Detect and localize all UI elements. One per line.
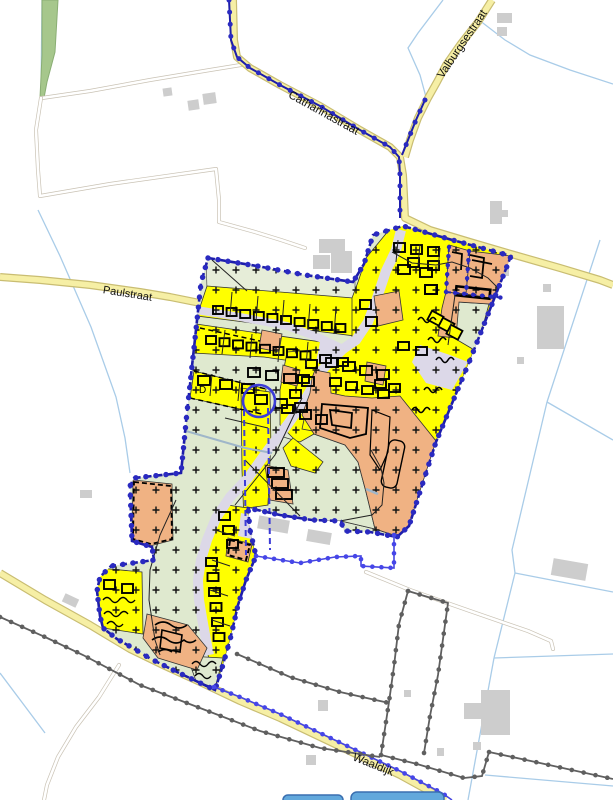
svg-text:D: D [199,385,206,396]
